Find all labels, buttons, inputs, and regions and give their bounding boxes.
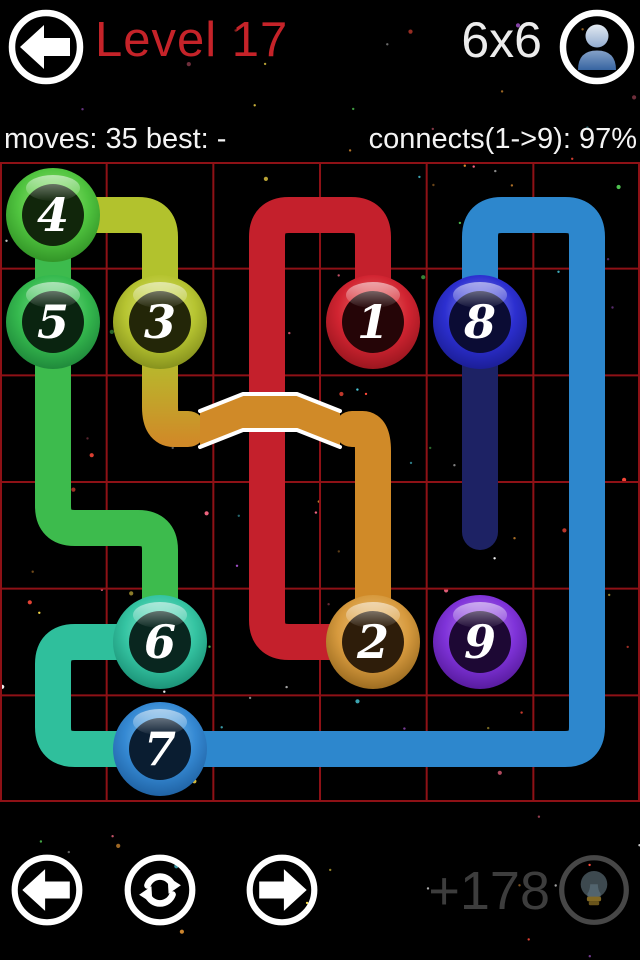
node-ball-6[interactable]: 6 — [113, 595, 207, 689]
grid-size-label: 6x6 — [446, 12, 542, 68]
node-number: 2 — [356, 615, 389, 669]
restart-button[interactable] — [122, 852, 198, 928]
hint-bonus-label: +178 — [420, 860, 550, 922]
grid-lines — [0, 163, 640, 801]
person-icon — [557, 7, 637, 87]
node-number: 8 — [463, 295, 496, 349]
lightbulb-icon — [556, 852, 632, 928]
node-ball-7[interactable]: 7 — [113, 702, 207, 796]
node-ball-4[interactable]: 4 — [6, 168, 100, 262]
hint-button[interactable] — [556, 852, 632, 928]
page-title: Level 17 — [95, 12, 288, 68]
node-number: 1 — [357, 295, 389, 349]
back-button[interactable] — [6, 7, 86, 87]
arrow-left-icon — [9, 852, 85, 928]
game-screen: 123456789 Level 17 6x6 moves: 35 best: -… — [0, 0, 640, 960]
stats-bar: moves: 35 best: - connects(1->9): 97% — [0, 123, 640, 157]
arrow-right-icon — [244, 852, 320, 928]
refresh-icon — [122, 852, 198, 928]
next-level-button[interactable] — [244, 852, 320, 928]
moves-best-label: moves: 35 best: - — [4, 123, 226, 156]
profile-button[interactable] — [557, 7, 637, 87]
node-ball-9[interactable]: 9 — [433, 595, 527, 689]
node-ball-2[interactable]: 2 — [326, 595, 420, 689]
node-number: 3 — [144, 295, 176, 349]
node-ball-3[interactable]: 3 — [113, 275, 207, 369]
arrow-left-icon — [6, 7, 86, 87]
node-number: 5 — [37, 295, 69, 349]
node-number: 4 — [37, 188, 69, 242]
node-ball-1[interactable]: 1 — [326, 275, 420, 369]
node-number: 6 — [144, 615, 176, 669]
node-ball-8[interactable]: 8 — [433, 275, 527, 369]
node-ball-5[interactable]: 5 — [6, 275, 100, 369]
node-number: 7 — [144, 722, 176, 776]
node-number: 9 — [464, 615, 496, 669]
prev-level-button[interactable] — [9, 852, 85, 928]
connects-label: connects(1->9): 97% — [369, 123, 637, 156]
